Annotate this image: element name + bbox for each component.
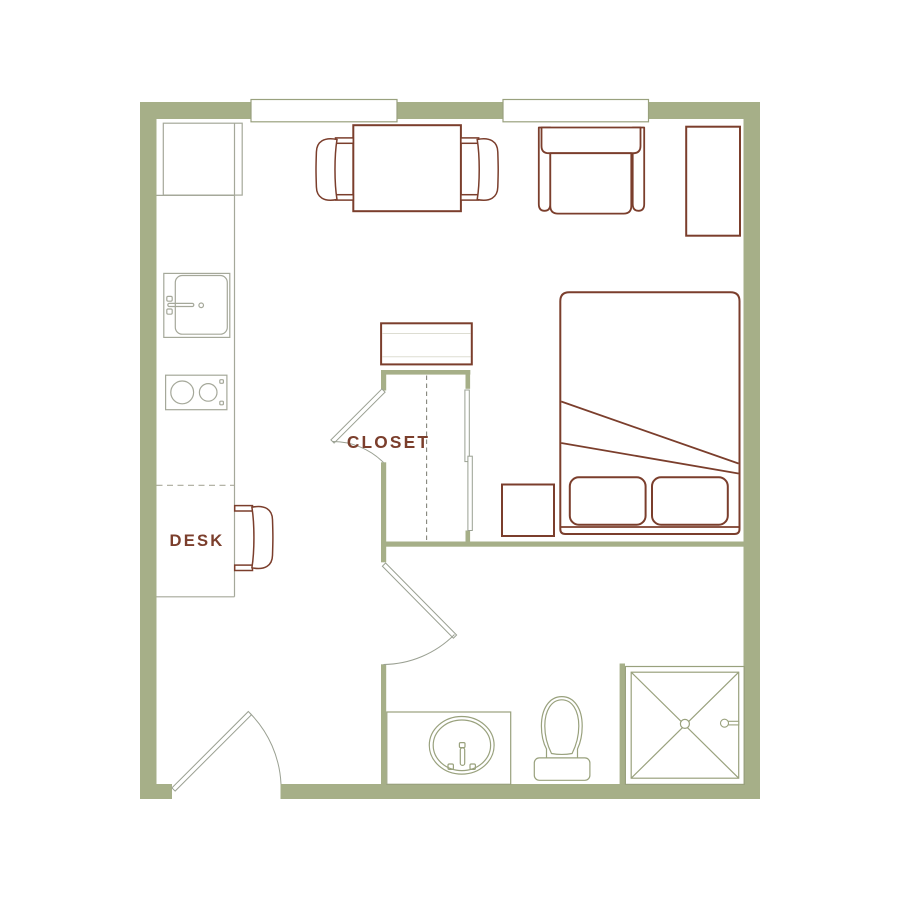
svg-text:DESK: DESK bbox=[170, 531, 225, 550]
svg-text:CLOSET: CLOSET bbox=[347, 432, 430, 452]
